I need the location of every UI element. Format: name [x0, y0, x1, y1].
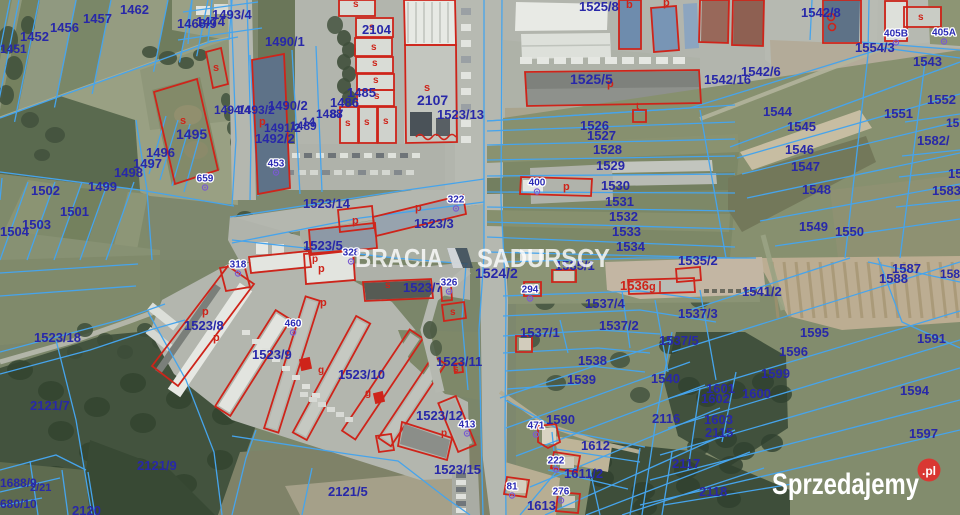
svg-text:s: s	[213, 62, 219, 74]
svg-text:322: 322	[448, 195, 465, 206]
svg-text:s: s	[345, 118, 351, 129]
svg-text:g: g	[365, 388, 371, 399]
svg-text:1594: 1594	[900, 383, 930, 398]
svg-text:81: 81	[506, 482, 518, 493]
svg-text:1537/5: 1537/5	[659, 333, 699, 348]
svg-text:1602: 1602	[701, 391, 730, 406]
svg-text:s: s	[918, 12, 924, 23]
svg-text:1534: 1534	[616, 239, 646, 254]
svg-text:1492/2: 1492/2	[255, 131, 295, 146]
svg-text:1523/12: 1523/12	[416, 408, 463, 423]
svg-text:s: s	[364, 117, 370, 128]
svg-text:1523/11: 1523/11	[436, 354, 482, 369]
svg-text:1495: 1495	[176, 126, 207, 142]
svg-text:1501: 1501	[60, 204, 89, 219]
svg-text:1523/14: 1523/14	[303, 196, 351, 211]
svg-text:1490/1: 1490/1	[265, 34, 305, 49]
svg-text:1596: 1596	[779, 344, 808, 359]
svg-text:326: 326	[441, 278, 458, 289]
svg-text:1537/2: 1537/2	[599, 318, 639, 333]
svg-text:s: s	[371, 42, 377, 53]
svg-text:1554/3: 1554/3	[855, 40, 895, 55]
svg-text:1613: 1613	[527, 498, 556, 513]
svg-text:Sprzedajemy: Sprzedajemy	[772, 468, 919, 501]
svg-text:405A: 405A	[932, 28, 956, 39]
svg-text:1541/2: 1541/2	[742, 284, 782, 299]
svg-text:15: 15	[946, 116, 960, 130]
svg-text:453: 453	[268, 159, 285, 170]
svg-text:1523/18: 1523/18	[34, 330, 81, 345]
svg-text:1537/1: 1537/1	[520, 325, 560, 340]
svg-text:2121/5: 2121/5	[328, 484, 368, 499]
svg-text:1588: 1588	[879, 271, 908, 286]
svg-text:1539: 1539	[567, 372, 596, 387]
svg-text:1523/15: 1523/15	[434, 462, 481, 477]
svg-text:1612: 1612	[581, 438, 610, 453]
svg-text:1582/: 1582/	[917, 133, 950, 148]
svg-text:1523/5: 1523/5	[303, 238, 343, 253]
svg-text:1597: 1597	[909, 426, 938, 441]
svg-text:1546: 1546	[785, 142, 814, 157]
svg-text:s: s	[372, 58, 378, 69]
svg-text:1611/2: 1611/2	[564, 466, 603, 481]
svg-text:2118: 2118	[699, 484, 727, 499]
svg-text:1591: 1591	[917, 331, 946, 346]
svg-text:222: 222	[548, 456, 565, 467]
svg-text:p: p	[213, 332, 220, 344]
svg-text:659: 659	[197, 174, 214, 185]
svg-text:1523/13: 1523/13	[437, 107, 484, 122]
svg-text:1533: 1533	[612, 224, 641, 239]
svg-text:1590: 1590	[546, 412, 575, 427]
svg-text:87: 87	[330, 107, 344, 121]
svg-text:1490/2: 1490/2	[268, 98, 308, 113]
svg-text:2116: 2116	[652, 411, 680, 426]
svg-text:460: 460	[285, 319, 302, 330]
svg-text:p: p	[663, 0, 670, 9]
svg-text:1527: 1527	[587, 128, 616, 143]
svg-text:1498: 1498	[114, 165, 143, 180]
svg-text:1529: 1529	[596, 158, 625, 173]
svg-text:680/10: 680/10	[0, 497, 37, 511]
svg-text:1499: 1499	[88, 179, 117, 194]
svg-text:1547: 1547	[791, 159, 820, 174]
svg-text:s: s	[353, 0, 359, 10]
svg-text:1536: 1536	[620, 278, 649, 293]
svg-text:2104: 2104	[362, 22, 392, 37]
svg-text:1551: 1551	[884, 106, 913, 121]
svg-text:p: p	[202, 306, 209, 318]
svg-text:p: p	[312, 254, 318, 265]
svg-text:1493/4: 1493/4	[212, 7, 253, 22]
svg-text:1544: 1544	[763, 104, 793, 119]
svg-text:1451: 1451	[0, 42, 27, 56]
svg-text:SADURSCY: SADURSCY	[477, 243, 610, 273]
svg-text:1525/8: 1525/8	[579, 0, 619, 14]
svg-text:1545: 1545	[787, 119, 816, 134]
svg-text:1537/3: 1537/3	[678, 306, 718, 321]
svg-text:1535/2: 1535/2	[678, 253, 718, 268]
svg-text:2121/7: 2121/7	[30, 398, 70, 413]
svg-text:b: b	[626, 0, 633, 11]
svg-text:.pl: .pl	[922, 464, 936, 478]
svg-text:294: 294	[522, 285, 539, 296]
svg-text:1532: 1532	[609, 209, 638, 224]
svg-text:1599: 1599	[761, 366, 790, 381]
svg-text:1523/7: 1523/7	[403, 280, 443, 295]
svg-text:1583: 1583	[932, 183, 960, 198]
svg-text:g: g	[318, 365, 324, 376]
svg-text:s: s	[385, 280, 391, 291]
svg-text:1525/5: 1525/5	[570, 71, 613, 87]
svg-text:p: p	[320, 297, 327, 309]
svg-text:2107: 2107	[417, 92, 448, 108]
svg-text:1504: 1504	[0, 224, 30, 239]
svg-text:p: p	[352, 215, 359, 227]
svg-text:1502: 1502	[31, 183, 60, 198]
svg-text:276: 276	[553, 487, 570, 498]
svg-text:318: 318	[230, 260, 247, 271]
svg-text:p: p	[318, 263, 325, 275]
svg-text:405B: 405B	[884, 29, 908, 40]
svg-text:1523/3: 1523/3	[414, 216, 454, 231]
svg-text:1523/9: 1523/9	[252, 347, 292, 362]
svg-text:p: p	[441, 428, 447, 439]
svg-text:1538: 1538	[578, 353, 607, 368]
svg-text:1457: 1457	[83, 11, 112, 26]
svg-text:1531: 1531	[605, 194, 634, 209]
svg-text:1586: 1586	[940, 267, 960, 281]
svg-text:1530: 1530	[601, 178, 630, 193]
svg-text:1456: 1456	[50, 20, 79, 35]
svg-text:413: 413	[459, 420, 476, 431]
svg-text:1523/8: 1523/8	[184, 318, 224, 333]
svg-text:1523/10: 1523/10	[338, 367, 385, 382]
svg-text:g: g	[649, 281, 656, 293]
svg-text:2121/9: 2121/9	[137, 458, 177, 473]
svg-text:1595: 1595	[800, 325, 829, 340]
svg-text:2115: 2115	[705, 425, 733, 440]
svg-text:471: 471	[528, 421, 545, 432]
svg-text:1542/6: 1542/6	[741, 64, 781, 79]
svg-text:1600: 1600	[742, 386, 771, 401]
svg-text:2117: 2117	[672, 456, 700, 471]
svg-text:2120: 2120	[72, 503, 101, 515]
svg-text:p: p	[563, 181, 570, 193]
svg-text:t: t	[636, 101, 639, 111]
svg-text:1542/8: 1542/8	[801, 5, 841, 20]
svg-text:1462: 1462	[120, 2, 149, 17]
svg-text:14: 14	[302, 115, 316, 129]
svg-text:1537/4: 1537/4	[585, 296, 626, 311]
svg-text:2/21: 2/21	[30, 482, 51, 494]
svg-text:1543: 1543	[913, 54, 942, 69]
svg-text:400: 400	[529, 178, 546, 189]
svg-text:1548: 1548	[802, 182, 831, 197]
svg-text:1550: 1550	[835, 224, 864, 239]
svg-text:p: p	[415, 202, 422, 214]
svg-text:1540: 1540	[651, 371, 680, 386]
svg-text:s: s	[383, 116, 389, 127]
svg-text:1528: 1528	[593, 142, 622, 157]
svg-text:1552: 1552	[927, 92, 956, 107]
svg-text:15: 15	[948, 166, 960, 181]
svg-text:1549: 1549	[799, 219, 828, 234]
svg-text:s: s	[450, 307, 456, 318]
svg-text:BRACIA: BRACIA	[355, 243, 443, 273]
